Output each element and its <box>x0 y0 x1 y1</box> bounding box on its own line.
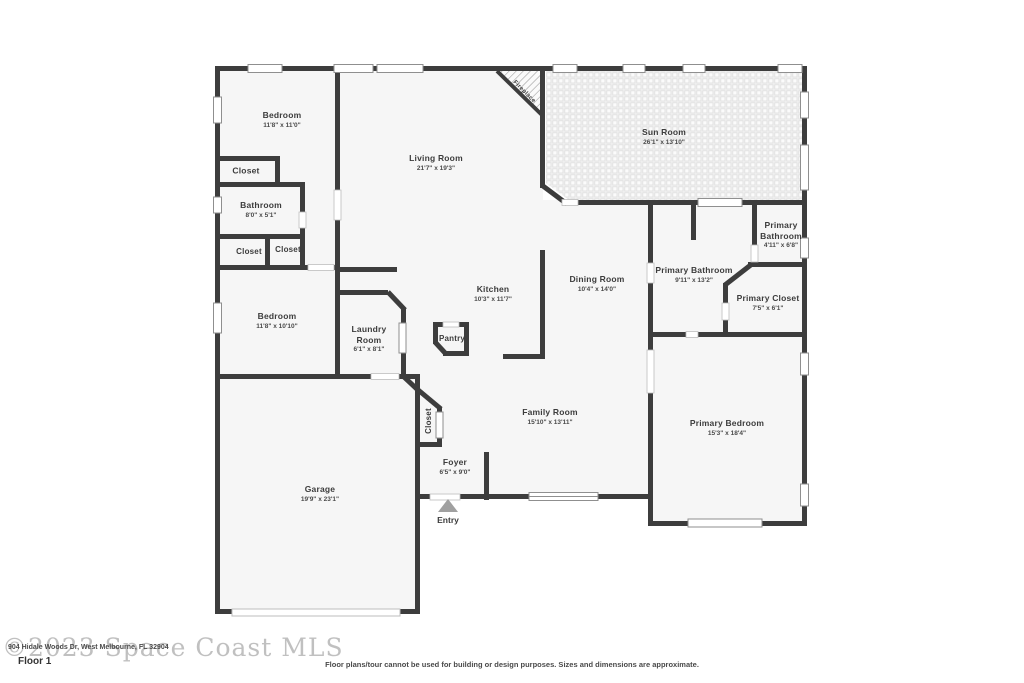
floorplan-drawing <box>0 0 1024 683</box>
disclaimer-text: Floor plans/tour cannot be used for buil… <box>0 660 1024 669</box>
sun-room-texture <box>546 71 804 200</box>
garage-door <box>232 609 400 616</box>
sliding-door <box>529 493 598 501</box>
floorplan-page: Bedroom 11'8" x 11'0" Closet Bathroom 8'… <box>0 0 1024 683</box>
entry-arrow-icon <box>438 499 458 512</box>
property-address: 904 Hidale Woods Dr, West Melbourne, FL … <box>8 644 169 651</box>
room-label-entry: Entry <box>437 515 459 525</box>
